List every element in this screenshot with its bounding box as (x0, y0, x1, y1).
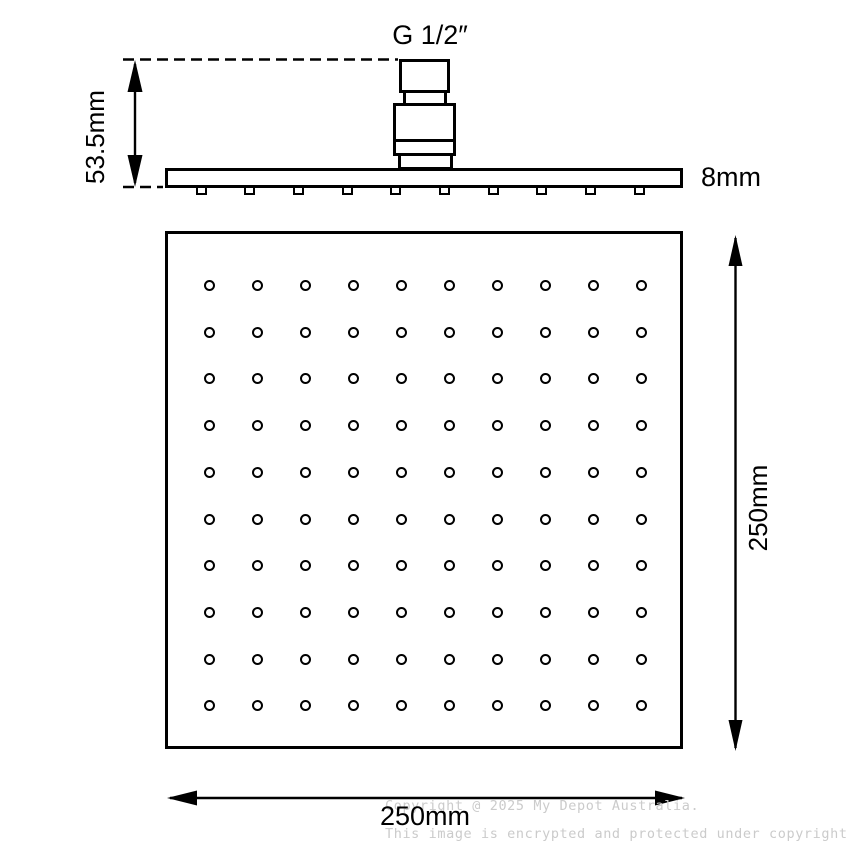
nozzle-hole (348, 560, 359, 571)
nozzle-hole (252, 327, 263, 338)
nozzle-hole (348, 327, 359, 338)
nozzle-hole (588, 560, 599, 571)
nozzle-hole (396, 514, 407, 525)
nozzle-hole (300, 280, 311, 291)
connector-thread-label: G 1/2″ (384, 20, 476, 50)
nozzle-hole (636, 700, 647, 711)
nozzle-hole (444, 420, 455, 431)
nozzle-hole (492, 654, 503, 665)
nozzle-hole (444, 700, 455, 711)
nozzle-hole (348, 467, 359, 478)
nozzle-hole (588, 607, 599, 618)
face-view-square (165, 231, 683, 749)
connector-body (393, 103, 456, 142)
nozzle-hole (204, 467, 215, 478)
nozzle-hole (444, 654, 455, 665)
nozzle-hole (636, 514, 647, 525)
nozzle-hole (396, 607, 407, 618)
nozzle-hole (540, 560, 551, 571)
nozzle-hole (252, 607, 263, 618)
nozzle-hole (348, 654, 359, 665)
nozzle-hole (492, 373, 503, 384)
nozzle-hole (588, 514, 599, 525)
connector-base (398, 153, 453, 170)
nozzle-hole (300, 514, 311, 525)
nozzle-hole (396, 700, 407, 711)
nozzle-hole (540, 420, 551, 431)
nozzle-hole (204, 373, 215, 384)
nozzle-hole (588, 654, 599, 665)
nozzle-hole (588, 373, 599, 384)
nozzle-hole (636, 280, 647, 291)
height-dim-label: 53.5mm (80, 87, 110, 187)
nozzle-hole (636, 654, 647, 665)
nozzle-hole (300, 327, 311, 338)
nozzle-hole (204, 654, 215, 665)
nozzle-hole (300, 607, 311, 618)
nozzle-hole (540, 467, 551, 478)
nozzle-hole (396, 560, 407, 571)
nozzle-hole (588, 467, 599, 478)
nozzle-hole (588, 280, 599, 291)
nozzle-hole (300, 467, 311, 478)
thickness-dim-label: 8mm (701, 162, 761, 192)
nozzle-hole (588, 420, 599, 431)
connector-inlet-nut (399, 59, 450, 93)
nozzle-hole (636, 420, 647, 431)
nozzle-hole (588, 700, 599, 711)
nozzle-hole (300, 654, 311, 665)
nozzle-hole (444, 514, 455, 525)
nozzle-hole (444, 373, 455, 384)
height-dim-arrow (128, 60, 143, 187)
nozzle-hole (348, 700, 359, 711)
nozzle-hole (444, 467, 455, 478)
nozzle-hole (252, 373, 263, 384)
nozzle-hole (252, 654, 263, 665)
nozzle-hole (492, 280, 503, 291)
nozzle-hole (252, 700, 263, 711)
nozzle-hole (540, 654, 551, 665)
nozzle-hole (396, 467, 407, 478)
nozzle-hole (492, 700, 503, 711)
nozzle-hole (636, 373, 647, 384)
nozzle-hole (492, 607, 503, 618)
nozzle-hole (252, 280, 263, 291)
nozzle-hole (636, 607, 647, 618)
nozzle-hole (396, 327, 407, 338)
nozzle-hole (492, 514, 503, 525)
nozzle-hole (252, 467, 263, 478)
nozzle-hole (348, 607, 359, 618)
nozzle-hole (492, 467, 503, 478)
nozzle-hole (348, 373, 359, 384)
nozzle-hole (396, 280, 407, 291)
nozzle-hole (300, 420, 311, 431)
nozzle-hole (300, 373, 311, 384)
nozzle-hole (444, 280, 455, 291)
nozzle-hole (444, 327, 455, 338)
nozzle-hole (396, 373, 407, 384)
nozzle-hole (348, 420, 359, 431)
nozzle-hole (252, 560, 263, 571)
nozzle-hole (636, 327, 647, 338)
nozzle-hole (396, 420, 407, 431)
nozzle-hole (588, 327, 599, 338)
nozzle-hole (204, 420, 215, 431)
nozzle-hole (540, 514, 551, 525)
nozzle-hole (492, 560, 503, 571)
nozzle-hole (396, 654, 407, 665)
nozzle-hole (252, 514, 263, 525)
face-height-dim-arrow (729, 235, 743, 751)
nozzle-hole (204, 700, 215, 711)
nozzle-hole (540, 700, 551, 711)
nozzle-hole (636, 467, 647, 478)
nozzle-hole (444, 560, 455, 571)
nozzle-hole (300, 560, 311, 571)
nozzle-hole (252, 420, 263, 431)
face-height-dim-label: 250mm (743, 462, 773, 554)
nozzle-hole (348, 280, 359, 291)
nozzle-hole (540, 607, 551, 618)
nozzle-hole (492, 420, 503, 431)
face-width-dim-label: 250mm (375, 801, 475, 831)
nozzle-hole (540, 327, 551, 338)
nozzle-hole (204, 327, 215, 338)
nozzle-hole (300, 700, 311, 711)
nozzle-hole (540, 373, 551, 384)
nozzle-hole (204, 560, 215, 571)
diagram-canvas: Copyright @ 2025 My Depot Australia. Thi… (0, 0, 850, 850)
nozzle-hole (636, 560, 647, 571)
nozzle-hole (204, 607, 215, 618)
nozzle-hole (444, 607, 455, 618)
nozzle-hole (492, 327, 503, 338)
nozzle-hole (348, 514, 359, 525)
nozzle-hole (540, 280, 551, 291)
shower-plate-side (165, 168, 683, 188)
nozzle-hole (204, 514, 215, 525)
nozzle-hole (204, 280, 215, 291)
